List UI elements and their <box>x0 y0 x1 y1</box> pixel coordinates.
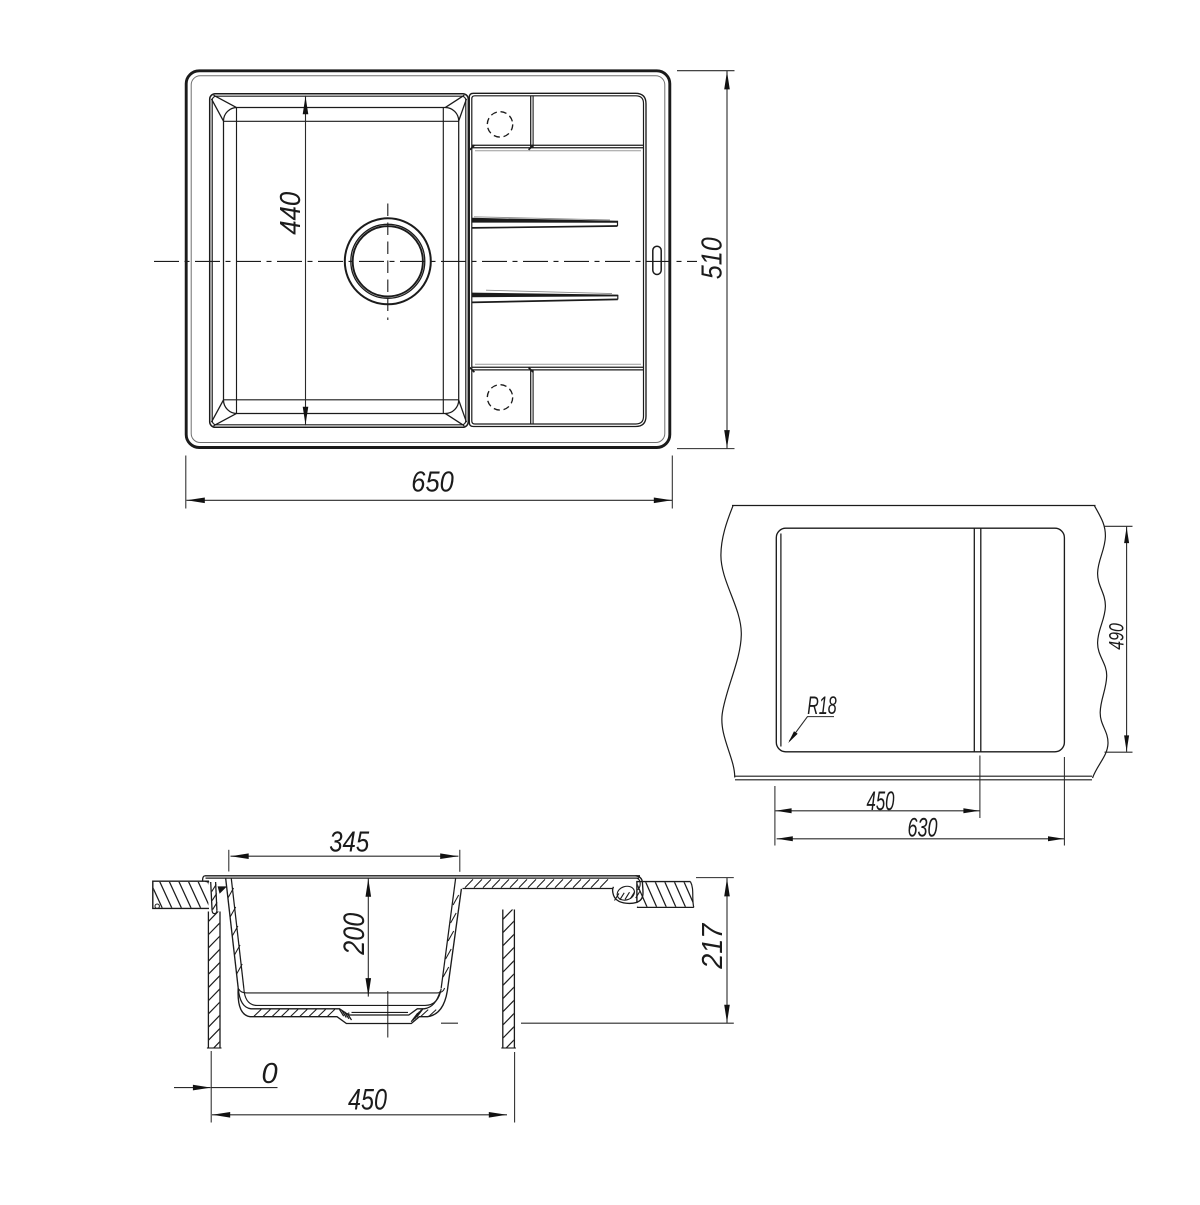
svg-text:490: 490 <box>1104 623 1128 650</box>
svg-text:345: 345 <box>329 826 370 858</box>
svg-text:200: 200 <box>338 912 371 955</box>
svg-text:440: 440 <box>275 192 307 235</box>
svg-text:450: 450 <box>867 786 895 816</box>
svg-text:630: 630 <box>908 813 938 843</box>
svg-text:510: 510 <box>697 237 729 279</box>
svg-text:R18: R18 <box>807 692 837 720</box>
svg-text:450: 450 <box>348 1084 387 1117</box>
svg-text:650: 650 <box>411 467 454 499</box>
svg-text:217: 217 <box>697 922 729 970</box>
svg-text:0: 0 <box>262 1058 278 1090</box>
